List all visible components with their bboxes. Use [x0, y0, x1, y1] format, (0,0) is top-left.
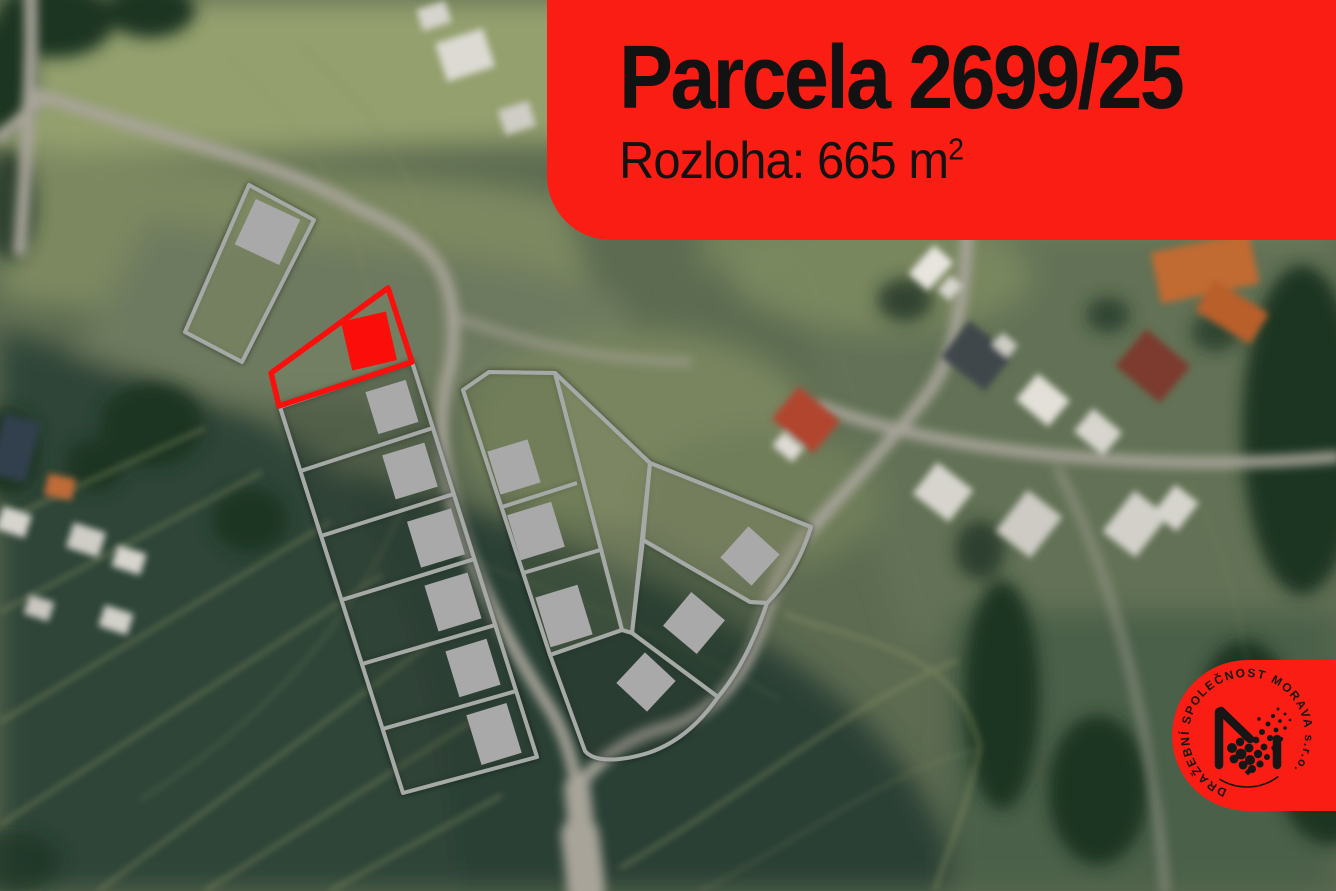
- info-banner: Parcela 2699/25 Rozloha: 665 m2: [547, 0, 1336, 240]
- stamp-bottom-arc: [1219, 777, 1278, 788]
- stamp-graphic: DRAŽEBNÍ SPOLEČNOST MORAVA s.r.o.: [1172, 660, 1336, 811]
- listing-image: Parcela 2699/25 Rozloha: 665 m2 DRAŽEBNÍ…: [0, 0, 1336, 891]
- area-superscript: 2: [948, 134, 963, 167]
- company-stamp: DRAŽEBNÍ SPOLEČNOST MORAVA s.r.o.: [1172, 660, 1336, 811]
- monogram-dots: [1227, 708, 1291, 776]
- parcel-area: Rozloha: 665 m2: [619, 131, 1293, 191]
- parcel-title: Parcela 2699/25: [619, 33, 1264, 123]
- area-label: Rozloha: 665 m: [619, 132, 948, 190]
